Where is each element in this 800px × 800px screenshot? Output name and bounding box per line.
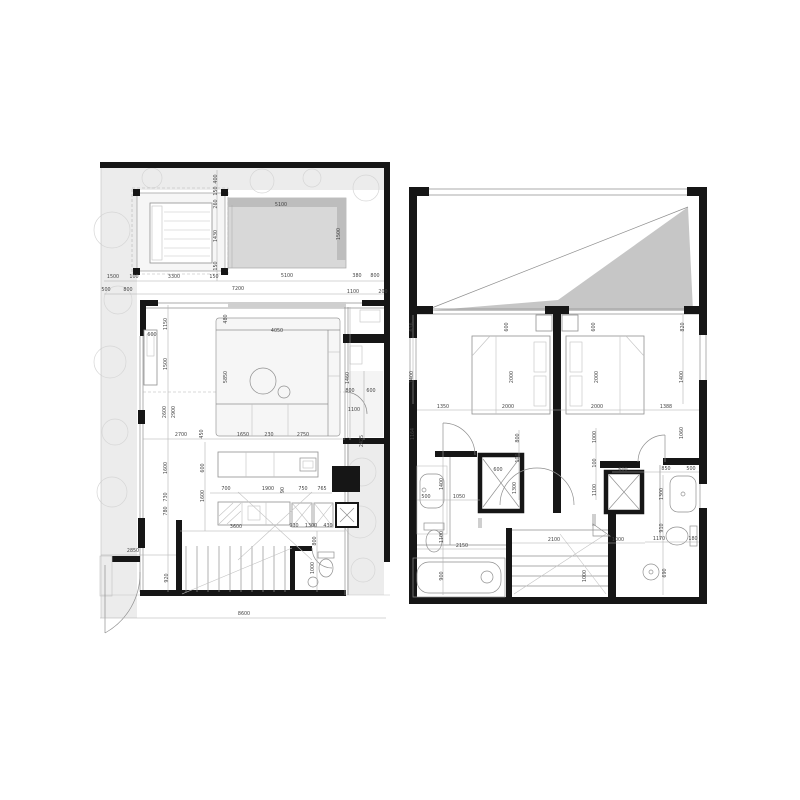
dimension-label: 380 [352,273,361,279]
dimension-label: 1300 [512,482,518,494]
floor-plans-drawing: 4001502601430150510015001500100330015051… [0,0,800,800]
dimension-label: 820 [680,322,686,331]
tv-bench [144,330,157,385]
dimension-label: 600 [618,467,627,473]
dimension-label: 150 [213,186,219,195]
dimension-label: 2150 [456,543,468,549]
dimension-label: 150 [209,274,218,280]
dimension-label: 1500 [107,274,119,280]
dimension-label: 600 [200,463,206,472]
dimension-label: 3600 [230,524,242,530]
dimension-label: 1400 [439,478,445,490]
dimension-label: 5850 [223,371,229,383]
dimension-label: 1050 [453,494,465,500]
dimension-label: 2850 [127,548,139,554]
nightstand [536,315,552,331]
dimension-label: 1350 [437,404,449,410]
dimension-label: 1430 [213,230,219,242]
dimension-label: 1400 [679,371,685,383]
left-floor-plan: 4001502601430150510015001500100330015051… [94,162,390,633]
dimension-label: 1900 [262,486,274,492]
dimension-label: 1600 [200,490,206,502]
dimension-label: 4050 [271,328,283,334]
dimension-label: 1000 [310,562,316,574]
dimension-label: 900 [439,571,445,580]
dimension-label: 260 [213,199,219,208]
dimension-label: 3300 [168,274,180,280]
dimension-label: 616 [409,322,415,331]
swimming-pool [228,198,346,268]
dimension-label: 8600 [238,611,250,617]
dimension-label: 2000 [502,404,514,410]
dimension-label: 1500 [163,358,169,370]
dimension-label: 850 [661,466,670,472]
dimension-label: 200 [378,289,387,295]
dimension-label: 1150 [163,318,169,330]
dimension-label: 690 [662,568,668,577]
dimension-label: 800 [345,388,354,394]
dimension-label: 1100 [347,289,359,295]
dimension-label: 1170 [653,536,665,542]
dimension-label: 100 [515,453,521,462]
dimension-label: 400 [213,174,219,183]
dimension-label: 500 [686,466,695,472]
dimension-label: 800 [515,433,521,442]
dimension-label: 1000 [592,431,598,443]
nightstand [562,315,578,331]
dimension-label: 2425 [359,435,365,447]
dimension-label: 500 [101,287,110,293]
floor-plan-canvas: 4001502601430150510015001500100330015051… [0,0,800,800]
dimension-label: 5100 [281,273,293,279]
dimension-label: 1000 [582,570,588,582]
dimension-label: 480 [223,314,229,323]
dimension-label: 2900 [171,406,177,418]
dimension-label: 600 [493,467,502,473]
dimension-label: 1650 [237,432,249,438]
dimension-label: 1100 [439,531,445,543]
dimension-label: 750 [298,486,307,492]
dimension-label: 910 [659,523,665,532]
dimension-label: 800 [123,287,132,293]
dimension-label: 600 [147,332,156,338]
dimension-label: 1300 [659,488,665,500]
bedroom-right [566,336,644,414]
dimension-label: 500 [421,494,430,500]
dimension-label: 765 [317,486,326,492]
bed [566,336,644,414]
wardrobe-right [606,472,642,512]
dimension-label: 920 [164,573,170,582]
dimension-label: 1300 [305,523,317,529]
dimension-label: 430 [323,523,332,529]
dimension-label: 2750 [297,432,309,438]
dimension-label: 2100 [548,537,560,543]
dimension-label: 2700 [175,432,187,438]
dimension-label: 230 [264,432,273,438]
dimension-label: 5100 [275,202,287,208]
kitchen-island [218,452,318,477]
dimension-label: 930 [289,523,298,529]
dimension-label: 7200 [232,286,244,292]
kitchen-counter [218,502,290,525]
dimension-label: 1164 [410,428,416,440]
dimension-label: 90 [280,487,286,493]
dimension-label: 2000 [594,371,600,383]
dimension-label: 730 [163,492,169,501]
dimension-label: 1388 [660,404,672,410]
dimension-label: 1000 [612,537,624,543]
dimension-label: 780 [163,506,169,515]
right-floor-plan: 6161400600200060020008201400135020002000… [409,187,707,604]
dimension-label: 600 [504,322,510,331]
dimension-label: 1500 [336,228,342,240]
dimension-label: 150 [213,261,219,270]
dimension-label: 2600 [162,406,168,418]
dimension-label: 700 [221,486,230,492]
dimension-label: 1460 [345,372,351,384]
dimension-label: 100 [129,274,138,280]
dimension-label: 1060 [679,427,685,439]
dimension-label: 800 [312,536,318,545]
dimension-label: 600 [366,388,375,394]
dimension-label: 600 [591,322,597,331]
dimension-label: 100 [592,458,598,467]
dimension-label: 1400 [409,371,415,383]
dimension-label: 2000 [509,371,515,383]
dimension-label: 450 [199,429,205,438]
dimension-label: 1100 [348,407,360,413]
sofa [216,318,340,436]
dimension-label: 1600 [163,462,169,474]
dimension-label: 1100 [592,484,598,496]
dimension-label: 2000 [591,404,603,410]
dimension-label: 180 [688,536,697,542]
dimension-label: 800 [370,273,379,279]
